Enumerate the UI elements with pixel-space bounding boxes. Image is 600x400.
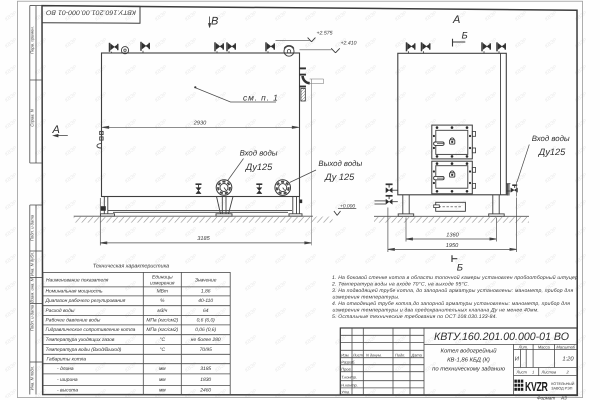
- svg-text:мм: мм: [159, 389, 166, 394]
- svg-text:Температура уходящих газов: Температура уходящих газов: [46, 337, 115, 343]
- svg-text:Температура воды (Вход/Выход): Температура воды (Вход/Выход): [46, 347, 122, 353]
- svg-text:1360: 1360: [446, 232, 459, 238]
- svg-text:Подп. и дата: Подп. и дата: [29, 214, 34, 241]
- svg-text:Н.контр.: Н.контр.: [341, 383, 357, 388]
- svg-text:Подп. и дата: Подп. и дата: [29, 304, 34, 331]
- svg-text:Диапазон рабочего регулирова: Диапазон рабочего регулирования: [45, 298, 126, 304]
- svg-text:Гидравлическое сопротивление: Гидравлическое сопротивление котла: [46, 327, 136, 333]
- svg-text:3. На подводящей трубе котла,: 3. На подводящей трубе котла, до запорно…: [332, 288, 573, 294]
- svg-text:Ду 125: Ду 125: [324, 172, 355, 182]
- svg-text:Подп.: Подп.: [395, 352, 405, 357]
- svg-text:Инв. N подл.: Инв. N подл.: [29, 366, 34, 390]
- svg-text:Разраб.: Разраб.: [341, 359, 355, 364]
- svg-text:Взам. инв. N: Взам. инв. N: [29, 277, 34, 302]
- svg-text:Утв.: Утв.: [341, 389, 350, 394]
- svg-text:Котел водогрейный: Котел водогрейный: [440, 348, 497, 355]
- svg-text:0,06 (0,6): 0,06 (0,6): [195, 327, 216, 333]
- svg-text:+2.410: +2.410: [341, 41, 357, 47]
- svg-text:70/95: 70/95: [200, 347, 213, 353]
- svg-text:Вход воды: Вход воды: [240, 149, 278, 158]
- svg-text:2930: 2930: [193, 121, 207, 127]
- svg-text:Справ. N: Справ. N: [29, 108, 34, 126]
- svg-text:- высота: - высота: [57, 389, 78, 394]
- svg-text:по техническому заданию: по техническому заданию: [432, 366, 505, 373]
- svg-text:Единицы: Единицы: [152, 275, 173, 281]
- svg-text:Номинальная мощность: Номинальная мощность: [46, 289, 104, 295]
- svg-text:KVZR: KVZR: [525, 379, 548, 394]
- svg-text:Масса: Масса: [538, 344, 551, 349]
- svg-text:64: 64: [203, 308, 209, 314]
- svg-text:Техническая характеристика: Техническая характеристика: [93, 264, 169, 270]
- svg-text:КВТУ.160.201.00.000-01 ВО: КВТУ.160.201.00.000-01 ВО: [434, 331, 570, 343]
- svg-text:Формат: Формат: [537, 396, 555, 400]
- svg-text:Б: Б: [457, 263, 463, 274]
- svg-text:Изм.: Изм.: [341, 352, 349, 357]
- svg-text:40-110: 40-110: [198, 298, 213, 304]
- svg-text:Расход воды: Расход воды: [46, 308, 75, 314]
- svg-text:+2.575: +2.575: [317, 31, 333, 37]
- svg-text:измерения температуры.: измерения температуры.: [333, 295, 400, 301]
- svg-text:1: 1: [532, 369, 534, 374]
- svg-text:%: %: [160, 298, 165, 304]
- svg-text:2. Температура воды на входе: 2. Температура воды на входе 70°С, на вы…: [331, 282, 469, 288]
- svg-text:1950: 1950: [446, 243, 459, 249]
- svg-text:- ширина: - ширина: [57, 378, 78, 383]
- svg-text:В: В: [211, 16, 218, 28]
- svg-text:КОТЕЛЬНЫЙ: КОТЕЛЬНЫЙ: [551, 381, 574, 386]
- svg-text:1. На боковой стенке котла в: 1. На боковой стенке котла в области топ…: [332, 275, 578, 281]
- svg-text:Масштаб: Масштаб: [556, 344, 575, 349]
- svg-text:5. Остальные технические треб: 5. Остальные технические требования по О…: [332, 314, 497, 320]
- svg-text:Дата: Дата: [411, 352, 423, 357]
- svg-text:не более 280: не более 280: [191, 337, 221, 343]
- svg-text:4. На отводящей трубе котла,д: 4. На отводящей трубе котла,до запорной …: [332, 301, 570, 307]
- svg-text:Габариты котла: Габариты котла: [47, 356, 87, 362]
- svg-text:МПа (кгс/см2): МПа (кгс/см2): [146, 327, 178, 333]
- svg-text:Лист: Лист: [352, 352, 364, 357]
- svg-text:N докум.: N докум.: [366, 352, 382, 357]
- svg-text:Листов: Листов: [541, 369, 557, 374]
- svg-text:см. п. 1: см. п. 1: [243, 92, 279, 102]
- svg-text:Выход воды: Выход воды: [318, 159, 362, 168]
- svg-text:2460: 2460: [199, 388, 211, 394]
- svg-text:Наименование показателя: Наименование показателя: [46, 278, 109, 284]
- svg-text:3185: 3185: [197, 236, 210, 242]
- svg-text:0,6 (6,0): 0,6 (6,0): [197, 317, 216, 323]
- svg-text:Перв. примен.: Перв. примен.: [29, 26, 34, 54]
- svg-text:+0.000: +0.000: [340, 203, 355, 209]
- svg-text:мм: мм: [159, 378, 166, 383]
- svg-text:Ду125: Ду125: [245, 162, 273, 172]
- svg-text:КВ-1,86 КБД (К): КВ-1,86 КБД (К): [447, 357, 490, 364]
- svg-text:3185: 3185: [200, 366, 211, 372]
- svg-text:А: А: [52, 124, 60, 136]
- svg-text:МПа (кгс/см2): МПа (кгс/см2): [146, 317, 178, 323]
- svg-text:Ду125: Ду125: [538, 147, 566, 157]
- svg-text:1,86: 1,86: [201, 289, 211, 295]
- svg-text:Рабочее давление воды: Рабочее давление воды: [46, 317, 101, 323]
- svg-text:Вход воды: Вход воды: [532, 134, 570, 143]
- svg-text:°С: °С: [160, 347, 166, 353]
- svg-text:°С: °С: [160, 337, 166, 343]
- svg-text:А3: А3: [560, 396, 567, 400]
- svg-text:Инв. N дубл.: Инв. N дубл.: [29, 252, 34, 276]
- svg-text:Б: Б: [462, 30, 468, 41]
- svg-text:МВт: МВт: [157, 289, 168, 295]
- svg-text:- длина: - длина: [57, 366, 74, 372]
- svg-text:Значение: Значение: [195, 278, 217, 284]
- svg-text:Лист: Лист: [516, 369, 528, 374]
- svg-text:1:20: 1:20: [562, 356, 574, 363]
- svg-text:Лит.: Лит.: [518, 344, 528, 349]
- svg-text:1830: 1830: [200, 377, 211, 383]
- svg-text:А: А: [452, 14, 460, 26]
- svg-text:Пров.: Пров.: [341, 366, 351, 371]
- svg-text:ЗАВОД РЭП: ЗАВОД РЭП: [551, 387, 572, 391]
- svg-text:КВТУ.160.201.00.000-01 ВО: КВТУ.160.201.00.000-01 ВО: [46, 8, 136, 15]
- svg-text:мм: мм: [159, 367, 166, 372]
- svg-text:измерения температуры и два пр: измерения температуры и два предохраните…: [333, 308, 539, 314]
- svg-text:измерения: измерения: [150, 282, 175, 287]
- svg-text:Т.контр.: Т.контр.: [341, 375, 357, 380]
- svg-text:м3/ч: м3/ч: [157, 308, 167, 314]
